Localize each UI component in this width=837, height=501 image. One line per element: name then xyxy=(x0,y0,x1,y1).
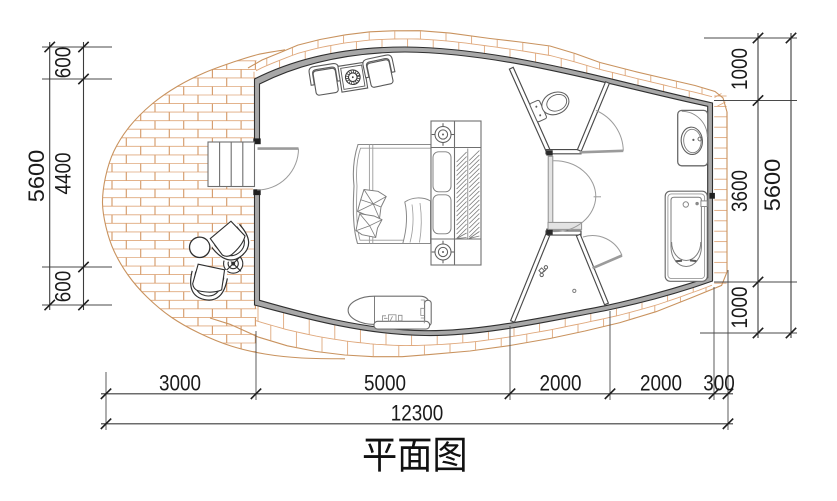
svg-text:3000: 3000 xyxy=(159,370,201,395)
svg-text:600: 600 xyxy=(51,47,76,79)
svg-text:300: 300 xyxy=(703,370,735,395)
svg-text:1000: 1000 xyxy=(727,287,752,329)
svg-text:4400: 4400 xyxy=(51,153,76,195)
svg-text:1000: 1000 xyxy=(727,48,752,90)
svg-text:5600: 5600 xyxy=(24,150,49,203)
svg-text:3600: 3600 xyxy=(727,170,752,212)
svg-text:2000: 2000 xyxy=(640,370,682,395)
svg-text:12300: 12300 xyxy=(391,400,444,425)
svg-text:5600: 5600 xyxy=(760,159,785,212)
svg-text:2000: 2000 xyxy=(540,370,582,395)
svg-text:600: 600 xyxy=(51,271,76,303)
svg-text:5000: 5000 xyxy=(364,370,406,395)
